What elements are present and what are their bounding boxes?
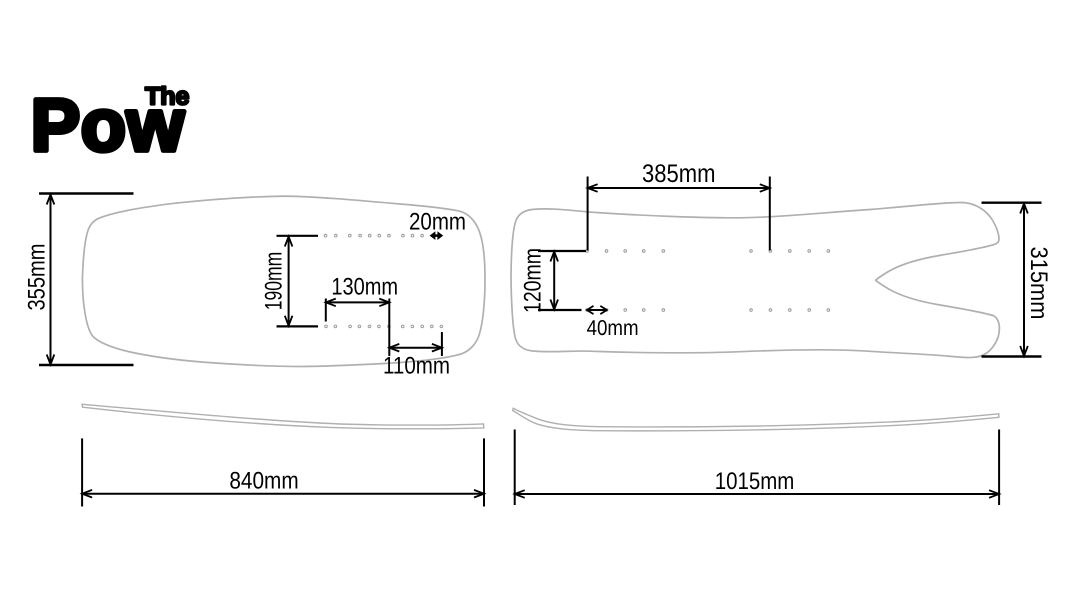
svg-text:355mm: 355mm [23,244,50,311]
svg-text:840mm: 840mm [229,468,298,495]
svg-text:40mm: 40mm [587,316,639,340]
svg-text:110mm: 110mm [383,352,450,379]
svg-text:The: The [145,83,190,111]
svg-text:1015mm: 1015mm [715,468,795,495]
svg-text:120mm: 120mm [520,248,547,313]
svg-text:315mm: 315mm [1025,247,1052,320]
svg-text:130mm: 130mm [331,274,398,301]
svg-text:190mm: 190mm [261,252,288,311]
svg-text:385mm: 385mm [642,160,716,188]
